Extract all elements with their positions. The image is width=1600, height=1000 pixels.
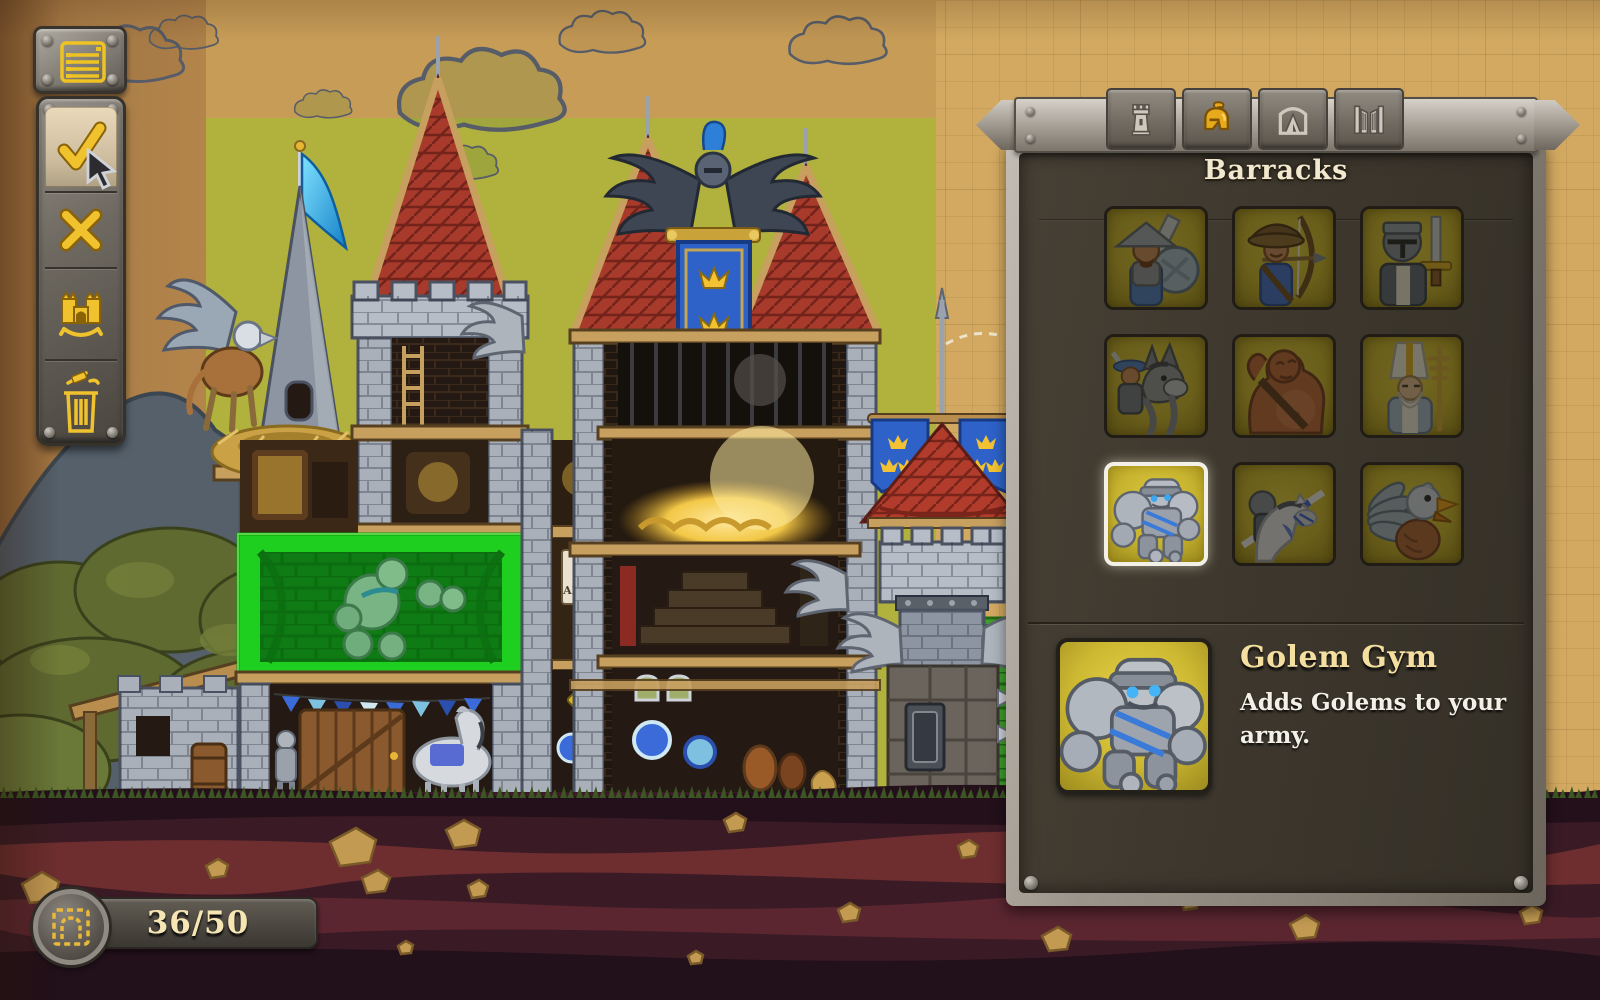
golem-icon	[1060, 642, 1208, 790]
delete-trash-icon	[56, 371, 106, 435]
unit-slot-ogre[interactable]	[1232, 334, 1336, 438]
cage-room	[618, 343, 832, 427]
game-screen: ARMY	[0, 0, 1600, 1000]
tent-icon	[1274, 100, 1312, 138]
tab-towers[interactable]	[1106, 88, 1176, 150]
castle: ARMY	[158, 36, 1046, 798]
detail-divider	[1028, 622, 1524, 624]
detail-description: Adds Golems to your army.	[1240, 686, 1540, 753]
placement-room-golem-gym[interactable]	[236, 534, 528, 684]
panel-title: Barracks	[1006, 155, 1546, 186]
detail-unit-icon	[1056, 638, 1212, 794]
eagle-emblem	[606, 122, 820, 242]
tab-barracks[interactable]	[1182, 88, 1252, 150]
unit-slot-archer[interactable]	[1232, 206, 1336, 310]
library-room	[240, 440, 358, 536]
unit-slot-priest[interactable]	[1360, 334, 1464, 438]
delete-button[interactable]	[45, 363, 117, 443]
clouds	[69, 11, 886, 179]
castle-overview-button[interactable]	[45, 271, 117, 355]
tab-gate[interactable]	[1334, 88, 1404, 150]
unit-slot-golem-selected[interactable]	[1104, 462, 1208, 566]
unit-slot-griffin[interactable]	[1360, 462, 1464, 566]
helmet-plume	[703, 122, 725, 150]
gate-icon	[1350, 100, 1388, 138]
room-placement-icon	[50, 906, 92, 948]
tab-camp[interactable]	[1258, 88, 1328, 150]
detail-title: Golem Gym	[1240, 640, 1530, 675]
castle-icon	[56, 285, 106, 341]
unit-slot-paladin[interactable]	[1360, 206, 1464, 310]
unit-slot-swordsman[interactable]	[1104, 206, 1208, 310]
cancel-button[interactable]	[45, 195, 117, 265]
golem-icon	[1108, 466, 1204, 562]
unit-slot-donkey-rider[interactable]	[1104, 334, 1208, 438]
stable-room	[240, 684, 522, 798]
list-icon	[60, 41, 106, 83]
treasure-room	[612, 426, 838, 560]
cancel-x-icon	[58, 207, 104, 253]
tower-icon	[1122, 100, 1160, 138]
mouse-cursor	[86, 148, 124, 192]
room-counter-badge	[33, 889, 109, 965]
trajectory-dashes	[946, 333, 1002, 344]
room-counter-value: 36/50	[147, 905, 250, 941]
room-counter: 36/50	[78, 897, 318, 949]
unit-slot-lancer[interactable]	[1232, 462, 1336, 566]
knight-helmet-icon	[1197, 99, 1237, 139]
menu-button[interactable]	[33, 26, 127, 94]
